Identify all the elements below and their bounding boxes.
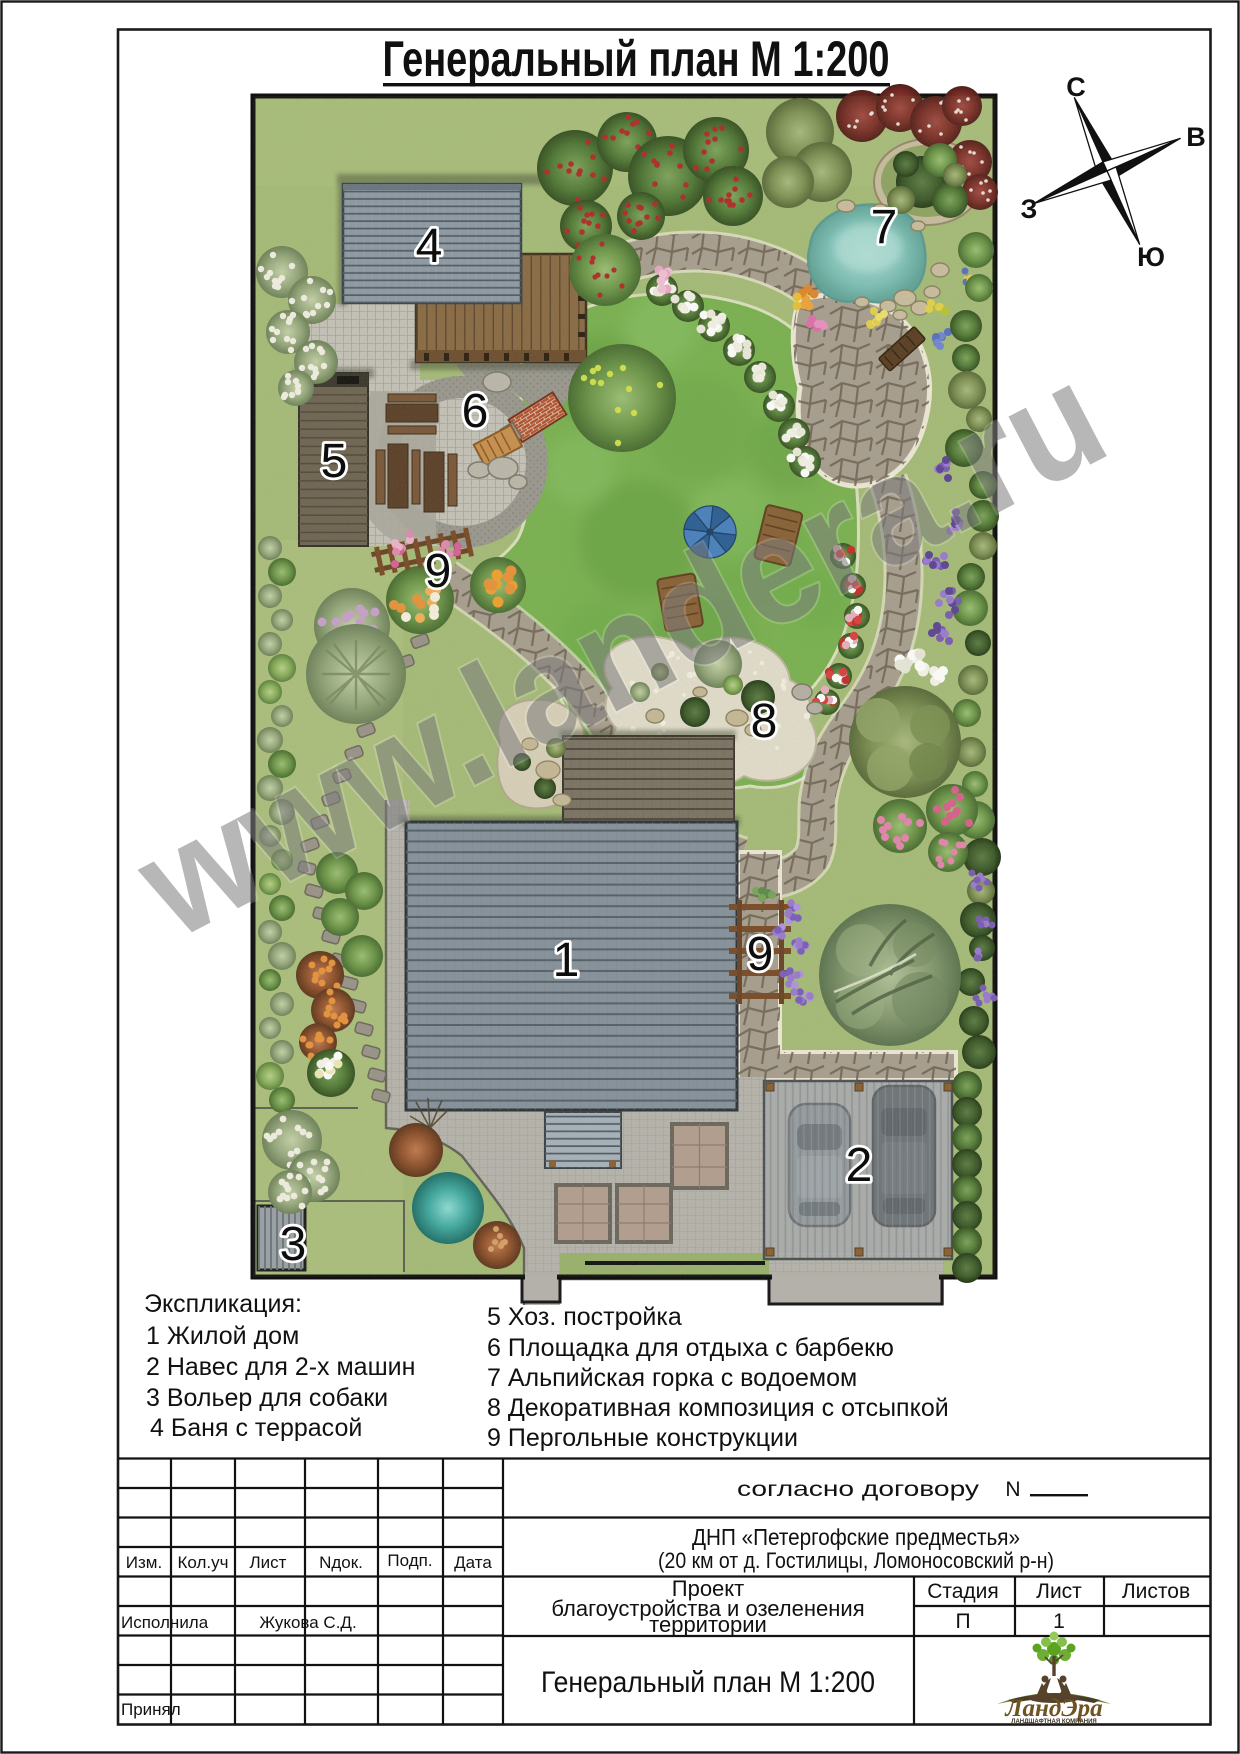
svg-text:Принял: Принял xyxy=(121,1700,181,1719)
svg-text:9: 9 xyxy=(425,545,452,598)
svg-text:Генеральный план М 1:200: Генеральный план М 1:200 xyxy=(541,1666,875,1699)
svg-text:(20 км от д. Гостилицы, Ломоно: (20 км от д. Гостилицы, Ломоносовский р-… xyxy=(658,1548,1054,1573)
svg-text:1: 1 xyxy=(553,934,580,987)
svg-text:Стадия: Стадия xyxy=(927,1580,999,1603)
svg-text:4 Баня с террасой: 4 Баня с террасой xyxy=(150,1414,362,1442)
svg-text:5: 5 xyxy=(321,435,348,488)
svg-text:З: З xyxy=(1021,194,1038,224)
svg-text:ДНП «Петергофские предместья»: ДНП «Петергофские предместья» xyxy=(692,1524,1020,1550)
svg-text:ЛандЭра: ЛандЭра xyxy=(1004,1695,1102,1722)
svg-text:В: В xyxy=(1186,122,1206,152)
svg-text:ЛАНДШАФТНАЯ КОМПАНИЯ: ЛАНДШАФТНАЯ КОМПАНИЯ xyxy=(1011,1719,1097,1725)
svg-text:С: С xyxy=(1066,72,1086,102)
svg-text:Жукова С.Д.: Жукова С.Д. xyxy=(259,1613,356,1632)
svg-text:7: 7 xyxy=(871,201,898,254)
svg-text:Изм.: Изм. xyxy=(126,1553,162,1572)
svg-text:Экспликация:: Экспликация: xyxy=(144,1290,302,1318)
svg-text:1: 1 xyxy=(1053,1610,1065,1633)
svg-text:2 Навес для 2-х машин: 2 Навес для 2-х машин xyxy=(146,1353,415,1381)
svg-text:7 Альпийская горка с водоемом: 7 Альпийская горка с водоемом xyxy=(487,1364,857,1392)
svg-text:Nдок.: Nдок. xyxy=(319,1553,363,1572)
svg-text:Лист: Лист xyxy=(1036,1580,1082,1603)
svg-text:Кол.уч: Кол.уч xyxy=(178,1553,229,1572)
svg-text:Подп.: Подп. xyxy=(387,1551,432,1570)
svg-text:Листов: Листов xyxy=(1122,1580,1190,1603)
svg-text:1 Жилой дом: 1 Жилой дом xyxy=(146,1322,299,1350)
svg-text:согласно договору: согласно договору xyxy=(737,1478,980,1501)
svg-text:8: 8 xyxy=(751,695,778,748)
svg-text:Лист: Лист xyxy=(250,1553,287,1572)
svg-text:Генеральный план М 1:200: Генеральный план М 1:200 xyxy=(383,31,890,87)
svg-text:территории: территории xyxy=(649,1612,767,1637)
svg-text:3 Вольер для собаки: 3 Вольер для собаки xyxy=(146,1384,388,1412)
svg-text:Ю: Ю xyxy=(1137,242,1165,272)
svg-text:2: 2 xyxy=(846,1139,873,1192)
svg-text:Дата: Дата xyxy=(454,1553,492,1572)
svg-text:П: П xyxy=(955,1610,970,1633)
svg-text:6 Площадка для отдыха с барбек: 6 Площадка для отдыха с барбекю xyxy=(487,1334,894,1362)
svg-text:8 Декоративная композиция с от: 8 Декоративная композиция с отсыпкой xyxy=(487,1394,949,1422)
svg-text:4: 4 xyxy=(416,220,443,273)
svg-text:9: 9 xyxy=(747,928,774,981)
svg-text:9 Пергольные конструкции: 9 Пергольные конструкции xyxy=(487,1424,798,1452)
svg-text:N: N xyxy=(1005,1478,1020,1501)
svg-text:5 Хоз. постройка: 5 Хоз. постройка xyxy=(487,1303,682,1331)
svg-text:Исполнила: Исполнила xyxy=(121,1613,209,1632)
svg-text:3: 3 xyxy=(280,1218,307,1271)
svg-text:6: 6 xyxy=(462,385,489,438)
